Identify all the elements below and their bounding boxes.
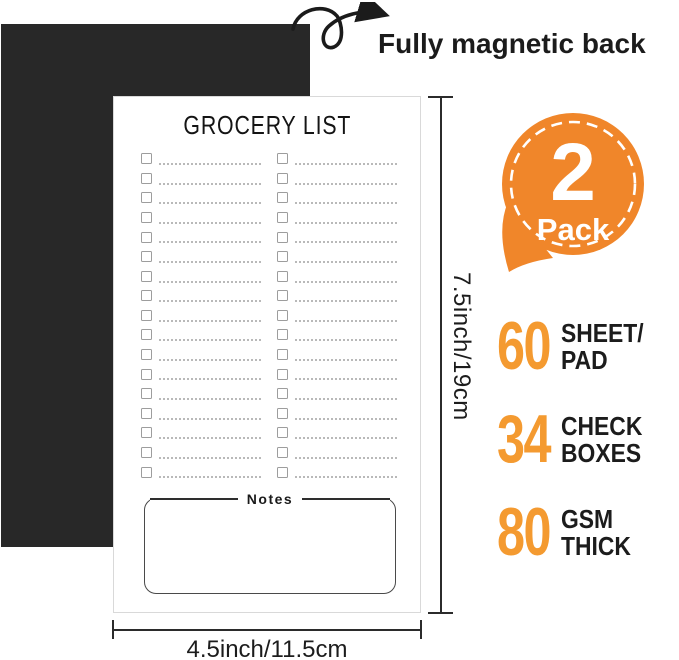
checkbox [277,329,288,340]
width-dimension-line [113,629,421,631]
checklist-row [141,227,261,247]
checklist-row [141,384,261,404]
height-dimension-cap-bottom [428,612,453,614]
checkbox [277,369,288,380]
dotted-writing-line [295,222,397,224]
dotted-writing-line [159,261,261,263]
notepad-title: GROCERY LIST [114,112,420,138]
height-dimension-cap-top [428,96,453,98]
dotted-writing-line [295,183,397,185]
dotted-writing-line [159,418,261,420]
checkbox [277,447,288,458]
dotted-writing-line [295,398,397,400]
height-dimension-label: 7.5inch/19cm [447,272,475,421]
checkbox [277,349,288,360]
checkbox [141,310,152,321]
checklist-row [141,404,261,424]
dotted-writing-line [159,222,261,224]
checklist-row [141,423,261,443]
dotted-writing-line [295,202,397,204]
badge-count: 2 [495,132,651,214]
notes-label: Notes [247,492,293,506]
checklist-row [277,247,397,267]
checklist-row [277,423,397,443]
checkbox [141,447,152,458]
checklist-row [277,208,397,228]
checklist-row [277,306,397,326]
dotted-writing-line [295,163,397,165]
checkbox [277,173,288,184]
checkbox [277,388,288,399]
dotted-writing-line [159,163,261,165]
magnetic-back-annotation: Fully magnetic back [378,29,646,60]
checkbox [141,408,152,419]
dotted-writing-line [295,300,397,302]
stat-sheets-value: 60 [497,319,550,373]
dotted-writing-line [295,418,397,420]
checkbox [141,290,152,301]
width-dimension-label: 4.5inch/11.5cm [113,636,421,660]
dotted-writing-line [295,359,397,361]
checklist-column [141,149,261,482]
stat-gsm: 80 GSM THICK [497,504,640,561]
notes-header: Notes [150,489,390,509]
checkbox [141,153,152,164]
checklist-row [277,384,397,404]
checkbox [277,427,288,438]
grocery-list-notepad: GROCERY LIST Notes [113,96,421,613]
dotted-writing-line [295,437,397,439]
dotted-writing-line [159,300,261,302]
notes-box: Notes [144,498,396,594]
checkbox [277,212,288,223]
dotted-writing-line [159,378,261,380]
checkbox [277,192,288,203]
stat-sheets: 60 SHEET/ PAD [497,318,655,375]
stat-gsm-value: 80 [497,505,550,559]
checkbox [277,408,288,419]
dotted-writing-line [159,437,261,439]
checklist [141,149,397,482]
checkbox [141,251,152,262]
checkbox [141,369,152,380]
checkbox [141,232,152,243]
checklist-row [277,227,397,247]
checklist-row [277,325,397,345]
dotted-writing-line [159,183,261,185]
checklist-row [277,462,397,482]
dotted-writing-line [295,261,397,263]
checklist-row [277,404,397,424]
checklist-column [277,149,397,482]
notes-rule-right [302,498,390,500]
checklist-row [141,462,261,482]
checkbox [141,271,152,282]
checklist-row [277,149,397,169]
checklist-row [277,286,397,306]
checkbox [277,153,288,164]
dotted-writing-line [295,241,397,243]
checkbox [277,467,288,478]
dotted-writing-line [159,398,261,400]
checklist-row [277,443,397,463]
checkbox [277,290,288,301]
dotted-writing-line [295,339,397,341]
checkbox [141,173,152,184]
dotted-writing-line [295,281,397,283]
dotted-writing-line [159,320,261,322]
dotted-writing-line [295,378,397,380]
checklist-row [141,443,261,463]
checklist-row [141,364,261,384]
checklist-row [141,286,261,306]
product-image: GROCERY LIST Notes Fully magnetic back 7… [0,0,679,660]
checklist-row [141,325,261,345]
dotted-writing-line [159,241,261,243]
checklist-row [277,266,397,286]
checkbox [141,427,152,438]
dotted-writing-line [159,339,261,341]
stat-checkboxes: 34 CHECK BOXES [497,411,653,468]
checkbox [277,232,288,243]
checkbox [141,212,152,223]
checkbox [141,388,152,399]
stat-checkboxes-label: CHECK BOXES [561,413,642,468]
checklist-row [141,306,261,326]
checklist-row [141,188,261,208]
stat-checkboxes-value: 34 [497,412,550,466]
checkbox [277,251,288,262]
checkbox [141,329,152,340]
checklist-row [141,208,261,228]
dotted-writing-line [159,476,261,478]
checkbox [277,310,288,321]
pack-count-badge: 2 Pack [495,110,679,295]
dotted-writing-line [159,457,261,459]
checklist-row [141,345,261,365]
dotted-writing-line [159,359,261,361]
checklist-row [277,364,397,384]
stat-gsm-label: GSM THICK [561,506,631,561]
dotted-writing-line [295,320,397,322]
height-dimension-line [440,97,442,613]
notes-rule-left [150,498,238,500]
badge-pack-label: Pack [495,214,651,245]
checklist-row [277,345,397,365]
checklist-row [277,188,397,208]
dotted-writing-line [159,281,261,283]
dotted-writing-line [159,202,261,204]
dotted-writing-line [295,476,397,478]
checkbox [277,271,288,282]
checklist-row [141,247,261,267]
checkbox [141,349,152,360]
checklist-row [141,266,261,286]
checklist-row [141,149,261,169]
dotted-writing-line [295,457,397,459]
checkbox [141,467,152,478]
stat-sheets-label: SHEET/ PAD [561,320,644,375]
checklist-row [141,169,261,189]
checklist-row [277,169,397,189]
checkbox [141,192,152,203]
